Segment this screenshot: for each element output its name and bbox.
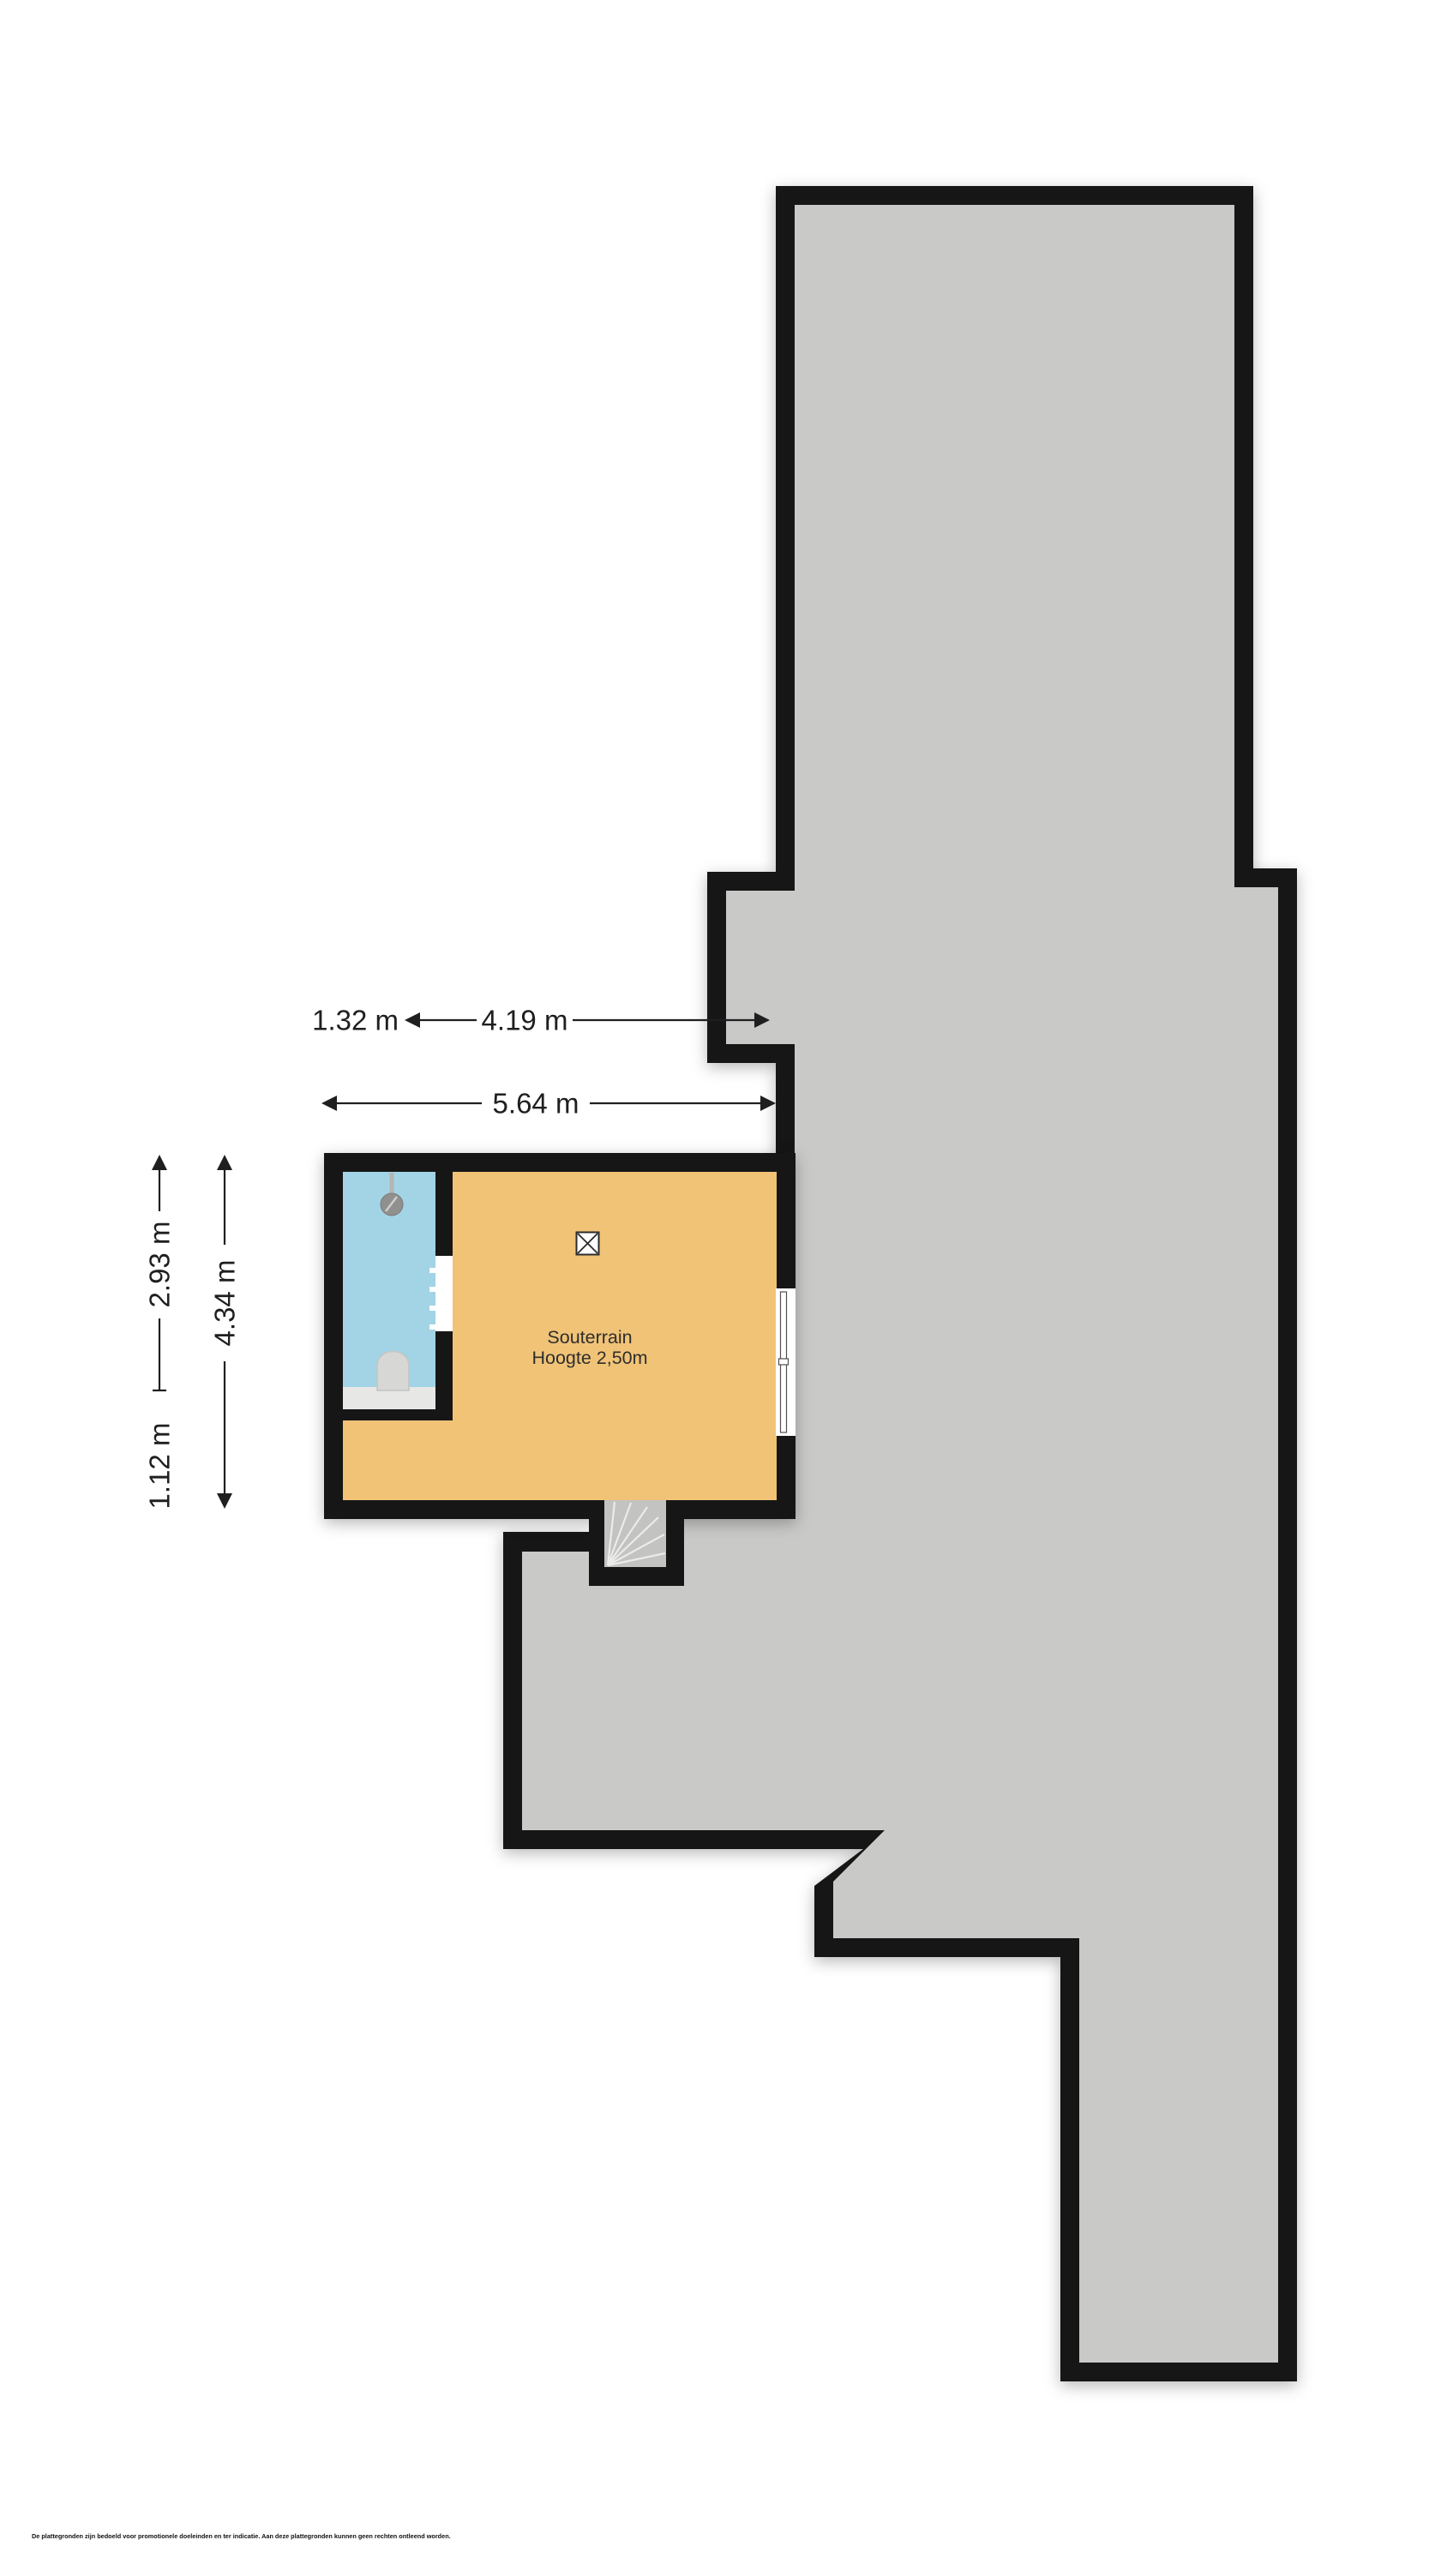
- stairwell: [589, 1500, 684, 1586]
- ventilation-icon: [577, 1233, 599, 1255]
- toilet-icon: [377, 1352, 409, 1391]
- dim-total-height-label: 4.34 m: [209, 1260, 241, 1347]
- dim-arrowhead-left: [321, 1096, 337, 1111]
- floorplan-canvas: Souterrain Hoogte 2,50m 1.32 m 4.19 m 5.…: [0, 0, 1447, 2572]
- dim-right-width-label: 4.19 m: [482, 1005, 568, 1036]
- dim-lower-height-label: 1.12 m: [144, 1423, 176, 1510]
- bathroom-wall-bottom: [343, 1409, 453, 1420]
- window-transom: [779, 1359, 789, 1365]
- door-jamb-tick: [429, 1287, 437, 1292]
- dim-arrowhead-down: [217, 1493, 232, 1509]
- disclaimer-text: De plattegronden zijn bedoeld voor promo…: [32, 2532, 451, 2540]
- dim-arrowhead-up: [152, 1155, 167, 1170]
- dim-split-height: 2.93 m 1.12 m: [144, 1155, 176, 1509]
- dim-arrowhead-left: [405, 1012, 420, 1028]
- door-opening-gap: [435, 1256, 453, 1331]
- door-jamb-tick: [429, 1268, 437, 1273]
- window-symbol: [776, 1288, 796, 1436]
- door-jamb-tick: [429, 1324, 437, 1330]
- room-label: Souterrain: [547, 1327, 632, 1348]
- dim-arrowhead-right: [760, 1096, 776, 1111]
- room-height-label: Hoogte 2,50m: [531, 1348, 647, 1368]
- dim-arrowhead-up: [217, 1155, 232, 1170]
- dim-upper-width: 1.32 m 4.19 m: [312, 1005, 770, 1036]
- dim-total-width: 5.64 m: [321, 1088, 776, 1120]
- dim-left-width-label: 1.32 m: [312, 1005, 399, 1036]
- dim-upper-height-label: 2.93 m: [144, 1222, 176, 1308]
- dim-total-width-label: 5.64 m: [493, 1088, 579, 1120]
- door-jamb-tick: [429, 1306, 437, 1311]
- dim-total-height: 4.34 m: [209, 1155, 241, 1509]
